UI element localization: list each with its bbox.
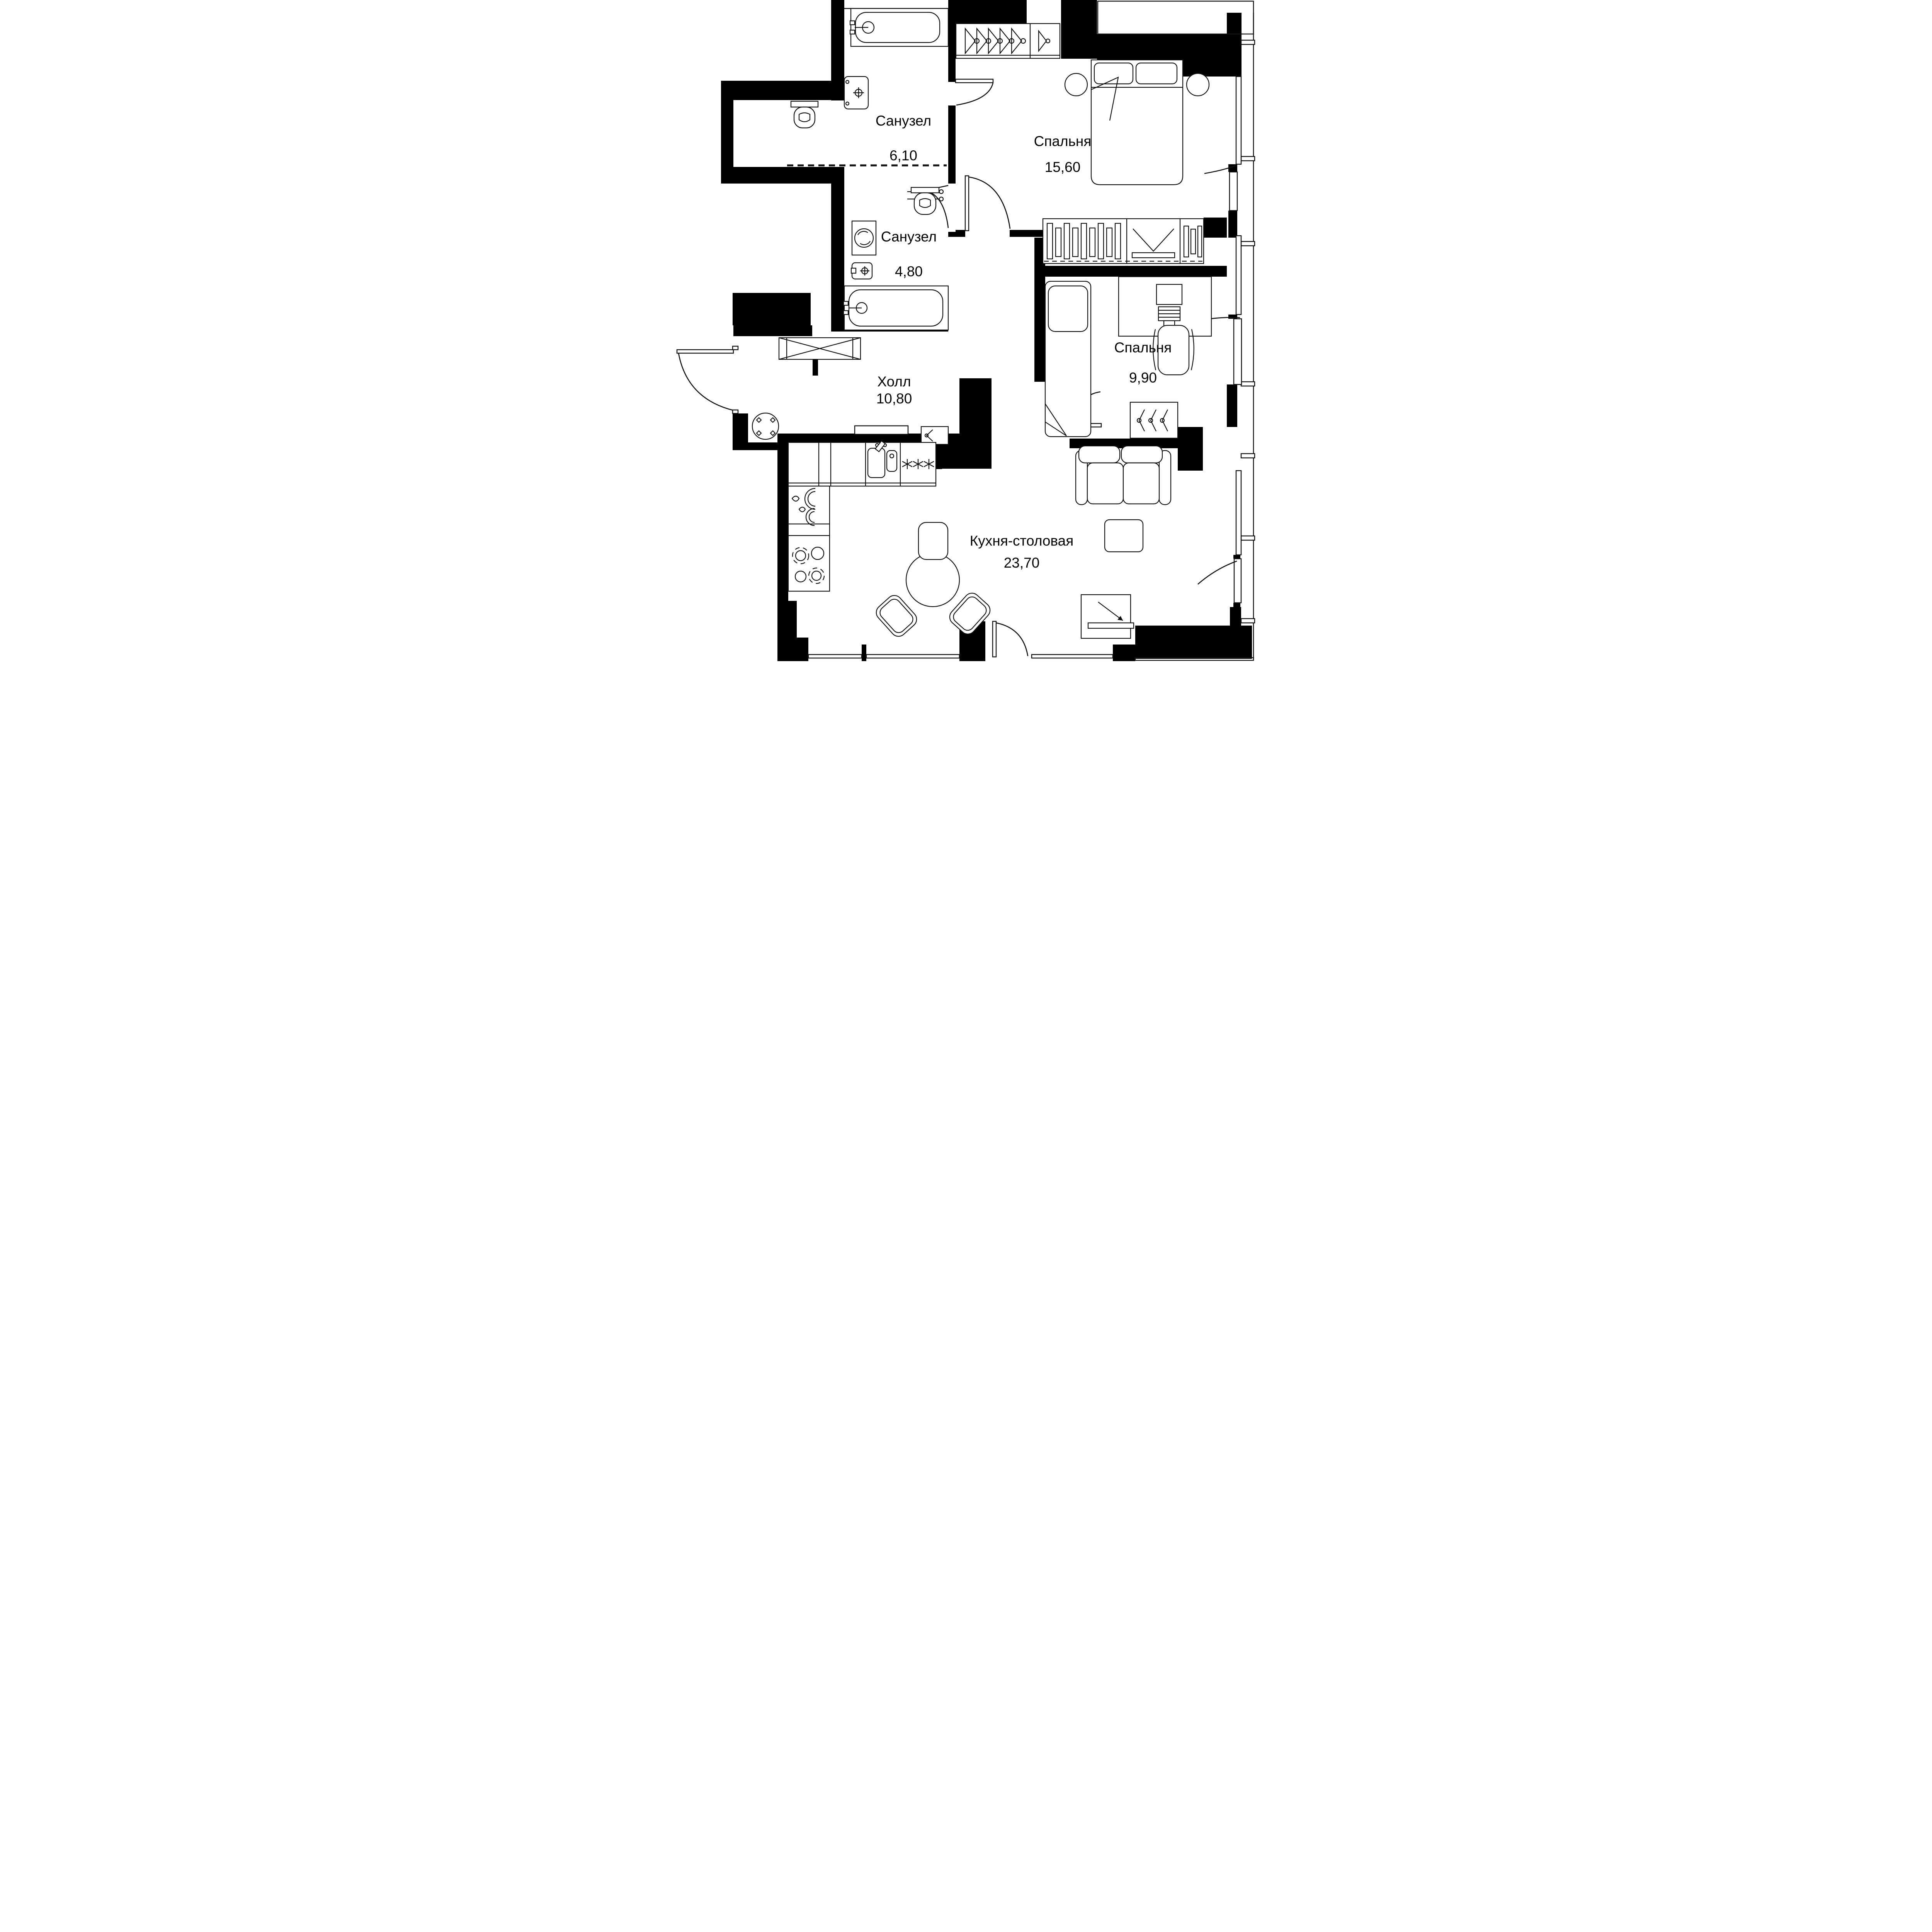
- balcony-door-bedroom-2: [1234, 319, 1242, 384]
- window-bedroom-1: [1236, 77, 1241, 164]
- room-label-hall-name: Холл: [877, 374, 911, 389]
- room-label-bathroom-1-area: 6,10: [889, 148, 917, 163]
- sofa: [1076, 446, 1171, 505]
- entry-mark: [1081, 595, 1134, 638]
- coat-hanger: [921, 427, 948, 444]
- sofa-seat: [1087, 463, 1123, 504]
- room-label-hall-area: 10,80: [876, 391, 912, 406]
- balcony-door-living: [1234, 559, 1241, 603]
- window-sill: [1241, 536, 1255, 540]
- window-kitchen-bottom: [808, 655, 862, 658]
- kitchen-counter: [788, 442, 936, 486]
- pillow: [1094, 63, 1133, 84]
- round-table: [752, 413, 779, 439]
- nightstand: [1187, 73, 1209, 96]
- room-label-bedroom-1-name: Спальня: [1034, 133, 1092, 149]
- entrance-door-leaf: [677, 350, 733, 353]
- washing-machine: [852, 221, 876, 255]
- closet: [1043, 219, 1204, 264]
- wardrobe: [956, 24, 1060, 58]
- hob-marks: [902, 459, 934, 469]
- nightstand: [1065, 73, 1087, 96]
- window-living-bottom: [1032, 655, 1113, 658]
- window-living: [1236, 471, 1241, 555]
- balcony-door-arc: [1198, 561, 1237, 584]
- room-label-bedroom-1-area: 15,60: [1045, 159, 1081, 175]
- sofa-back-cushion: [1079, 446, 1120, 463]
- dining-chair: [918, 522, 948, 560]
- room-label-bathroom-2-area: 4,80: [895, 264, 923, 279]
- coffee-table: [1105, 520, 1143, 552]
- toilet: [914, 193, 936, 214]
- balcony-slab-bottom: [1135, 658, 1253, 660]
- dining-table: [906, 553, 959, 607]
- laptop-screen: [1156, 284, 1182, 304]
- sofa-back-cushion: [1121, 446, 1162, 463]
- sink-tap: [851, 268, 856, 273]
- door-jamb: [733, 346, 738, 350]
- bathtub-faucet: [844, 301, 848, 305]
- room-label-kitchen-name: Кухня-столовая: [970, 533, 1074, 549]
- room-label-bedroom-2-area: 9,90: [1129, 370, 1157, 386]
- bathtub-faucet: [850, 30, 855, 34]
- door-jamb: [733, 410, 738, 413]
- bedroom-1-door-arc: [969, 177, 1010, 229]
- vent-box: [855, 426, 908, 434]
- bathtub-inner: [849, 290, 943, 326]
- sofa-seat: [1123, 463, 1159, 504]
- room-label-bedroom-2-name: Спальня: [1114, 340, 1172, 355]
- hall: [752, 338, 948, 444]
- toilet-tank: [791, 101, 818, 107]
- room-label-kitchen-area: 23,70: [1004, 555, 1040, 571]
- dining-chair: [873, 592, 920, 639]
- bathroom-2: [844, 187, 948, 330]
- window-dining-bottom: [866, 655, 959, 658]
- window-sill: [1241, 241, 1255, 246]
- bedroom-1-door-leaf: [965, 176, 969, 231]
- bathtub-faucet: [850, 21, 855, 25]
- balcony-door-bedroom-1: [1230, 172, 1237, 211]
- hanger-cabinet: [1130, 402, 1178, 438]
- window-sill: [1241, 40, 1255, 44]
- floor-plan-canvas: Санузел 6,10 Спальня 15,60 Санузел 4,80 …: [676, 0, 1256, 661]
- window-sill: [1241, 156, 1255, 161]
- bathroom-1-door-arc: [956, 83, 993, 105]
- pillow: [1136, 63, 1177, 84]
- bathroom-1-door-leaf: [956, 79, 993, 83]
- bedroom-2: [1045, 277, 1211, 438]
- room-label-bathroom-2-name: Санузел: [881, 229, 937, 245]
- balcony-door-bottom-leaf: [993, 621, 996, 657]
- toilet: [794, 107, 815, 128]
- room-label-bathroom-1-name: Санузел: [876, 113, 931, 129]
- entrance-door-arc: [679, 353, 733, 410]
- bathtub-faucet: [844, 311, 848, 315]
- kitchen-sink: [868, 448, 885, 478]
- window-sill: [1241, 382, 1255, 386]
- window-sill: [1241, 619, 1255, 623]
- window-bedroom-2: [1236, 236, 1241, 315]
- balcony-door-bottom-arc: [996, 623, 1028, 656]
- window-sill: [1241, 454, 1255, 458]
- toilet-tank: [911, 187, 939, 193]
- pillow: [1048, 286, 1088, 332]
- floor-plan: Санузел 6,10 Спальня 15,60 Санузел 4,80 …: [676, 0, 1256, 661]
